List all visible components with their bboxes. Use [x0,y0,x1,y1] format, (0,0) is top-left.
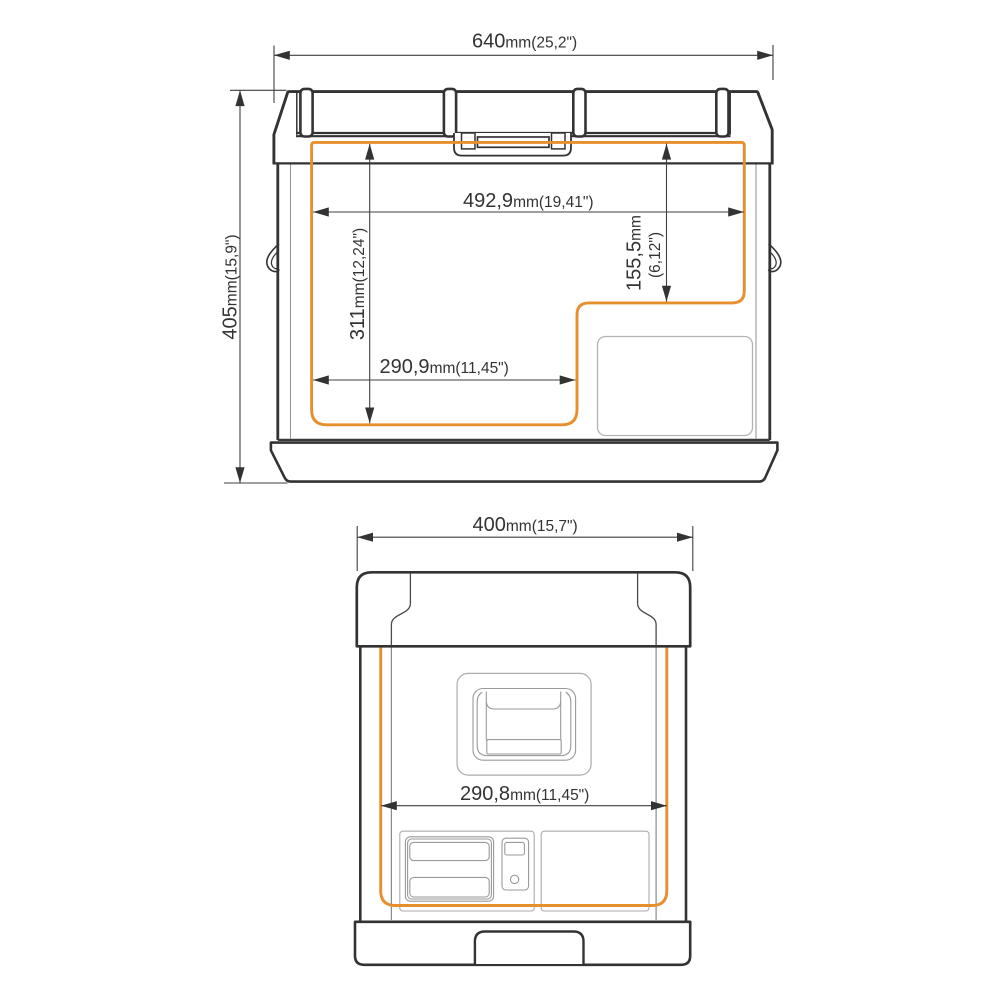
svg-text:155,5mm: 155,5mm [624,215,646,291]
svg-text:640mm(25,2"): 640mm(25,2") [472,31,577,53]
svg-text:405mm(15,9"): 405mm(15,9") [220,234,242,339]
svg-text:(6,12"): (6,12") [647,232,664,278]
svg-text:290,9mm(11,45"): 290,9mm(11,45") [380,356,509,378]
svg-text:492,9mm(19,41"): 492,9mm(19,41") [463,190,594,212]
svg-text:311mm(12,24"): 311mm(12,24") [347,228,369,340]
svg-text:290,8mm(11,45"): 290,8mm(11,45") [460,783,589,805]
svg-text:400mm(15,7"): 400mm(15,7") [473,514,578,536]
